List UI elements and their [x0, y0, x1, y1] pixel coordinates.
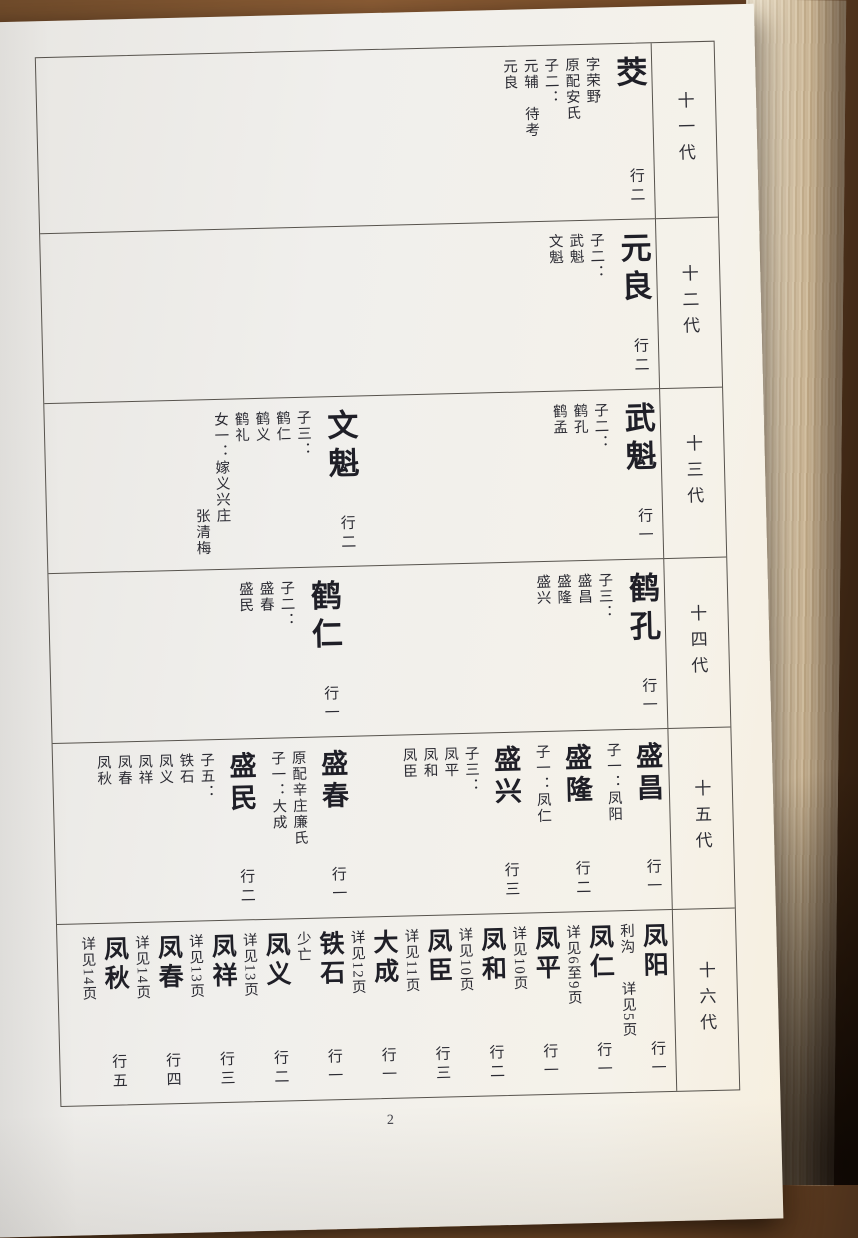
page-number: 2	[387, 1113, 394, 1129]
person-name: 凤秋	[100, 935, 128, 994]
person-entry: 凤和行二详见10页	[451, 926, 508, 1083]
note-column: 详见10页	[456, 927, 475, 1083]
child-name: 盛昌	[575, 573, 592, 605]
daughter-note: 女一：嫁义兴庄	[212, 412, 231, 524]
person-name-column: 元良行二	[616, 231, 652, 376]
generation-label-cell: 十六代	[672, 907, 739, 1090]
note-column: 详见13页	[186, 933, 205, 1089]
annotation-column: 原配安氏	[562, 57, 581, 207]
child-name: 鹤孔	[571, 403, 588, 435]
person-entry: 元良行二子二：武魁文魁	[541, 231, 652, 378]
person-name-column: 文魁行二	[322, 409, 358, 554]
children-heading-column: 子三：	[294, 410, 313, 554]
person-entry: 凤秋行五详见14页	[73, 935, 130, 1092]
person-entry: 盛民行二子五：铁石凤义凤祥凤春凤秋	[89, 751, 258, 910]
person-entry: 盛兴行三子三：凤平凤和凤臣	[395, 745, 523, 903]
child-name: 凤秋	[95, 755, 112, 787]
children-heading-column: 子二：	[587, 232, 606, 376]
child-name: 凤义	[157, 753, 174, 785]
person-name: 盛春	[317, 749, 347, 814]
child-column: 鹤孟	[550, 403, 569, 547]
birth-order-rank: 行二	[229, 868, 258, 907]
child-name: 鹤礼	[232, 411, 249, 443]
see-page-note: 详见11页	[402, 928, 420, 993]
child-name: 凤平	[442, 746, 459, 778]
person-name-column: 凤平行一	[531, 925, 561, 1082]
generation-row-6: 凤阳行一利沟详见5页凤仁行一详见6至9页凤平行一详见10页凤和行二详见10页凤臣…	[57, 909, 676, 1106]
child-column: 元良	[500, 59, 519, 209]
person-name: 凤春	[154, 934, 182, 993]
children-heading: 子三：	[596, 572, 613, 620]
birth-order-rank: 行二	[264, 1049, 291, 1088]
person-name: 盛昌	[632, 741, 662, 806]
person-name-column: 凤阳行一	[639, 922, 669, 1079]
daughter-note-column: 女一：嫁义兴庄	[211, 412, 230, 556]
annotation-text: 原配辛庄廉氏	[289, 750, 307, 846]
child-name: 盛隆	[555, 573, 572, 605]
person-name: 凤臣	[423, 927, 451, 986]
person-name-column: 凤秋行五	[100, 935, 130, 1092]
person-name: 鹤孔	[624, 571, 658, 648]
child-name: 武魁	[567, 233, 584, 265]
birth-order-rank: 行一	[627, 677, 660, 716]
note-column: 详见14页	[78, 936, 97, 1092]
person-name: 盛隆	[561, 743, 591, 808]
child-column: 鹤仁	[273, 410, 292, 554]
person-name-column: 凤春行四	[154, 934, 184, 1091]
person-name-column: 盛隆行二	[561, 743, 593, 899]
birth-order-rank: 行四	[157, 1052, 184, 1091]
child-column: 凤义	[156, 753, 175, 908]
birth-order-rank: 行二	[325, 515, 358, 554]
person-entry: 凤义行二详见13页	[235, 931, 292, 1088]
person-name-column: 大成行一	[369, 929, 399, 1086]
child-column: 文魁	[546, 233, 565, 377]
children-heading-column: 子一：凤仁	[533, 744, 552, 899]
child-column: 元辅待考	[521, 58, 540, 208]
genealogy-paper-sheet: 茭行二字荣野原配安氏子二：元辅待考元良十一代元良行二子二：武魁文魁十二代武魁行一…	[0, 4, 783, 1238]
birth-order-rank: 行一	[534, 1043, 561, 1082]
see-page-note: 详见10页	[510, 926, 528, 992]
birth-order-rank: 行二	[614, 167, 647, 206]
person-name: 武魁	[620, 401, 654, 478]
daughter-note: 张清梅	[194, 508, 211, 556]
child-name: 元良	[501, 59, 518, 91]
generation-row-3: 武魁行一子二：鹤孔鹤孟文魁行二子三：鹤仁鹤义鹤礼女一：嫁义兴庄张清梅	[44, 388, 663, 573]
children-heading: 子一：凤仁	[533, 744, 551, 824]
person-name: 盛民	[226, 751, 256, 816]
generation-row-1: 茭行二字荣野原配安氏子二：元辅待考元良	[36, 43, 655, 233]
person-name: 盛兴	[490, 745, 520, 810]
note-column: 利沟详见5页	[617, 923, 636, 1079]
child-column: 盛春	[257, 581, 276, 725]
photo-of-genealogy-page: { "page": { "number": "2" }, "generation…	[0, 0, 858, 1185]
person-entry: 鹤孔行一子三：盛昌盛隆盛兴	[528, 571, 660, 718]
person-name: 元良	[616, 231, 650, 308]
see-page-note: 详见14页	[79, 936, 97, 1002]
person-name-column: 凤和行二	[477, 926, 507, 1083]
child-name: 凤臣	[400, 747, 417, 779]
child-column: 凤秋	[94, 755, 113, 910]
generation-label: 十二代	[676, 264, 703, 343]
children-heading: 子二：	[542, 58, 559, 106]
see-page-note: 详见13页	[241, 932, 259, 998]
note-column: 详见11页	[402, 928, 421, 1084]
children-heading-column: 子三：	[462, 746, 481, 901]
person-entry: 茭行二字荣野原配安氏子二：元辅待考元良	[495, 55, 647, 209]
birth-order-rank: 行一	[622, 507, 655, 546]
generation-label: 十五代	[688, 779, 715, 858]
person-entry: 凤祥行三详见13页	[181, 933, 238, 1090]
see-page-note: 详见13页	[187, 933, 205, 999]
birth-order-rank: 行三	[493, 862, 522, 901]
person-name: 凤阳	[639, 922, 667, 981]
child-column: 凤祥	[135, 754, 154, 909]
person-name-column: 鹤仁行一	[306, 579, 342, 724]
person-name-column: 盛春行一	[317, 749, 349, 905]
generation-row-2: 元良行二子二：武魁文魁	[40, 218, 659, 403]
generation-label: 十一代	[671, 91, 698, 170]
children-heading: 子二：	[592, 402, 609, 450]
birth-order-rank: 行二	[564, 860, 593, 899]
note-column: 详见13页	[240, 932, 259, 1088]
person-name-column: 凤义行二	[262, 931, 292, 1088]
birth-order-rank: 行二	[480, 1044, 507, 1083]
person-name: 文魁	[322, 409, 356, 486]
generation-label: 十四代	[684, 603, 711, 682]
child-name: 鹤仁	[274, 410, 291, 442]
child-column: 凤臣	[400, 747, 419, 902]
person-entry: 凤平行一详见10页	[504, 925, 561, 1082]
generation-label-cell: 十二代	[655, 217, 722, 388]
person-entry: 盛隆行二子一：凤仁	[528, 743, 594, 899]
see-page-note: 详见6至9页	[564, 924, 582, 1006]
child-column: 鹤礼	[232, 411, 251, 555]
children-heading: 子二：	[278, 580, 295, 628]
children-heading: 子五：	[198, 752, 215, 800]
child-column: 凤春	[115, 754, 134, 909]
annotation-text: 原配安氏	[563, 57, 581, 121]
person-name-column: 凤仁行一	[585, 923, 615, 1080]
children-heading-column: 子三：	[595, 572, 614, 716]
person-name-column: 铁石行一	[316, 930, 346, 1087]
person-name: 凤义	[262, 931, 290, 990]
birth-order-rank: 行三	[211, 1051, 238, 1090]
person-entry: 凤臣行三详见11页	[397, 927, 454, 1084]
annotation-column: 原配辛庄廉氏	[289, 750, 308, 905]
child-name: 盛民	[237, 581, 254, 613]
children-heading: 子一：大成	[269, 750, 287, 830]
child-name: 凤祥	[136, 754, 153, 786]
note-column: 详见10页	[509, 926, 528, 1082]
child-name: 文魁	[546, 233, 563, 265]
birth-order-rank: 行一	[642, 1040, 669, 1079]
generation-row-4: 鹤孔行一子三：盛昌盛隆盛兴鹤仁行一子二：盛春盛民	[48, 558, 667, 743]
child-name: 元辅	[521, 58, 538, 90]
children-heading: 子一：凤阳	[604, 742, 622, 822]
children-heading-column: 子二：	[591, 402, 610, 546]
child-column: 凤和	[420, 747, 439, 902]
person-entry: 凤春行四详见14页	[127, 934, 184, 1091]
person-name-column: 盛兴行三	[490, 745, 522, 901]
generation-row-5: 盛昌行一子一：凤阳盛隆行二子一：凤仁盛兴行三子三：凤平凤和凤臣盛春行一原配辛庄廉…	[53, 728, 672, 924]
children-heading: 子三：	[294, 410, 311, 458]
birth-order-rank: 行一	[588, 1041, 615, 1080]
birth-order-rank: 行一	[320, 866, 349, 905]
person-name: 鹤仁	[306, 579, 340, 656]
generation-label: 十六代	[693, 960, 720, 1039]
generation-label-cell: 十一代	[651, 42, 718, 218]
person-name-column: 武魁行一	[620, 401, 656, 546]
note-column: 详见12页	[348, 930, 367, 1086]
see-page-note: 详见12页	[348, 929, 366, 995]
person-entry: 凤仁行一详见6至9页	[558, 923, 615, 1080]
person-name-column: 凤臣行三	[423, 927, 453, 1084]
person-name-column: 盛昌行一	[632, 741, 664, 897]
child-column: 凤平	[441, 746, 460, 901]
person-entry: 盛昌行一子一：凤阳	[599, 741, 665, 897]
children-heading: 子二：	[588, 232, 605, 280]
person-name: 凤祥	[208, 933, 236, 992]
child-column: 盛昌	[575, 573, 594, 717]
birth-order-rank: 行一	[635, 858, 664, 897]
birth-order-rank: 行三	[426, 1045, 453, 1084]
person-name: 凤和	[477, 926, 505, 985]
child-name: 铁石	[177, 753, 194, 785]
generation-label-cell: 十五代	[667, 726, 734, 908]
person-entry: 鹤仁行一子二：盛春盛民	[231, 579, 342, 726]
birth-order-rank: 行二	[618, 337, 651, 376]
person-name: 凤平	[531, 925, 559, 984]
child-note: 待考	[523, 106, 540, 138]
note-top: 少亡	[295, 931, 312, 963]
person-name-column: 茭行二	[611, 55, 647, 206]
see-page-note: 详见5页	[619, 981, 636, 1038]
child-column: 鹤义	[252, 411, 271, 555]
generation-label-cell: 十四代	[663, 557, 730, 728]
person-name-column: 鹤孔行一	[624, 571, 660, 716]
generation-label-cell: 十三代	[659, 387, 726, 558]
person-entry: 盛春行一原配辛庄廉氏子一：大成	[263, 749, 349, 906]
note-column: 少亡	[294, 931, 313, 1087]
note-column: 详见6至9页	[563, 924, 582, 1080]
birth-order-rank: 行一	[309, 685, 342, 724]
note-top: 利沟	[618, 923, 635, 955]
birth-order-rank: 行一	[372, 1047, 399, 1086]
see-page-note: 详见14页	[133, 935, 151, 1001]
child-column: 武魁	[566, 233, 585, 377]
child-column: 盛隆	[554, 573, 573, 717]
child-name: 凤春	[115, 754, 132, 786]
annotation-text: 字荣野	[583, 56, 600, 104]
children-heading-column: 子一：凤阳	[604, 742, 623, 897]
daughter-note-column: 张清梅	[191, 412, 210, 556]
child-column: 铁石	[177, 753, 196, 908]
see-page-note: 详见10页	[456, 927, 474, 993]
birth-order-rank: 行一	[318, 1048, 345, 1087]
child-column: 鹤孔	[571, 403, 590, 547]
child-column: 盛民	[236, 581, 255, 725]
child-column: 盛兴	[533, 574, 552, 718]
children-heading: 子三：	[462, 746, 479, 794]
children-heading-column: 子二：	[277, 580, 296, 724]
child-name: 盛兴	[534, 574, 551, 606]
children-heading-column: 子二：	[541, 58, 560, 208]
person-name-column: 凤祥行三	[208, 933, 238, 1090]
person-name: 茭	[611, 55, 644, 94]
person-name-column: 盛民行二	[226, 751, 258, 907]
person-name: 铁石	[316, 930, 344, 989]
person-entry: 凤阳行一利沟详见5页	[612, 922, 669, 1079]
genealogy-table: 茭行二字荣野原配安氏子二：元辅待考元良十一代元良行二子二：武魁文魁十二代武魁行一…	[35, 41, 740, 1107]
child-name: 鹤孟	[551, 403, 568, 435]
generation-label: 十三代	[680, 434, 707, 513]
child-name: 盛春	[257, 581, 274, 613]
person-entry: 大成行一详见12页	[343, 929, 400, 1086]
child-name: 凤和	[421, 747, 438, 779]
child-name: 鹤义	[253, 411, 270, 443]
children-heading-column: 子五：	[197, 752, 216, 907]
person-entry: 铁石行一少亡	[289, 930, 346, 1087]
children-heading-column: 子一：大成	[268, 750, 287, 905]
person-name: 凤仁	[585, 923, 613, 982]
annotation-column: 字荣野	[583, 57, 602, 207]
person-entry: 文魁行二子三：鹤仁鹤义鹤礼女一：嫁义兴庄张清梅	[186, 409, 359, 557]
birth-order-rank: 行五	[103, 1053, 130, 1092]
note-column: 详见14页	[132, 935, 151, 1091]
person-entry: 武魁行一子二：鹤孔鹤孟	[545, 401, 656, 548]
person-name: 大成	[369, 929, 397, 988]
